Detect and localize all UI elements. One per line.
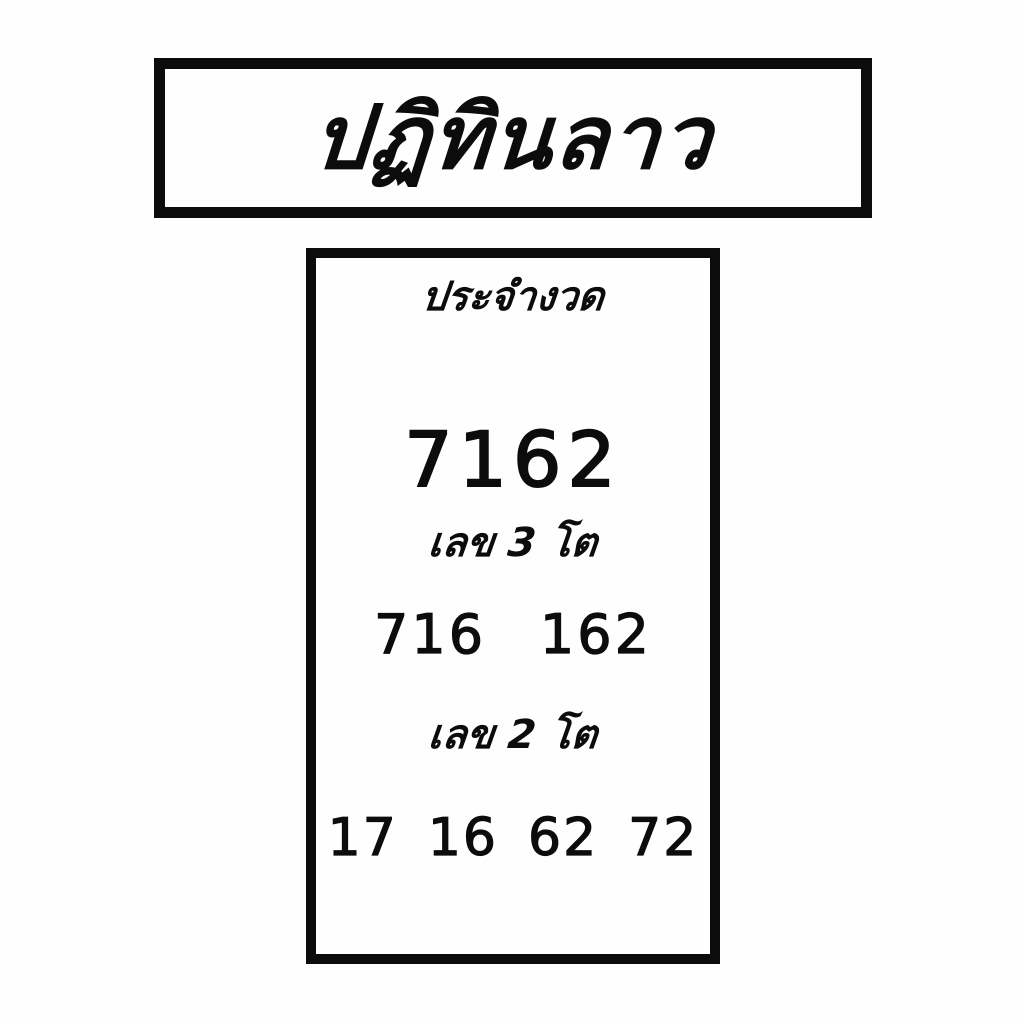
two-digit-number: 16 bbox=[428, 812, 498, 864]
card-content: ประจำงวด 7162 เลข 3 โต 716 162 เลข 2 โต … bbox=[316, 258, 710, 954]
three-digit-label: เลข 3 โต bbox=[313, 514, 713, 570]
two-digit-numbers: 17 16 62 72 bbox=[316, 808, 710, 868]
poster-canvas: ปฏิทินลาว ประจำงวด 7162 เลข 3 โต 716 162… bbox=[0, 0, 1024, 1024]
three-digit-numbers: 716 162 bbox=[316, 604, 710, 666]
card-header: ประจำงวด bbox=[313, 270, 712, 322]
lottery-draw-card: ประจำงวด 7162 เลข 3 โต 716 162 เลข 2 โต … bbox=[306, 248, 720, 964]
main-draw-number: 7162 bbox=[316, 416, 710, 502]
two-digit-number: 62 bbox=[528, 812, 598, 864]
title-banner: ปฏิทินลาว bbox=[154, 58, 872, 218]
two-digit-label: เลข 2 โต bbox=[313, 706, 713, 762]
two-digit-number: 72 bbox=[628, 812, 698, 864]
poster-title: ปฏิทินลาว bbox=[310, 94, 716, 182]
three-digit-number: 716 bbox=[374, 608, 486, 662]
three-digit-number: 162 bbox=[540, 608, 652, 662]
two-digit-number: 17 bbox=[328, 812, 398, 864]
